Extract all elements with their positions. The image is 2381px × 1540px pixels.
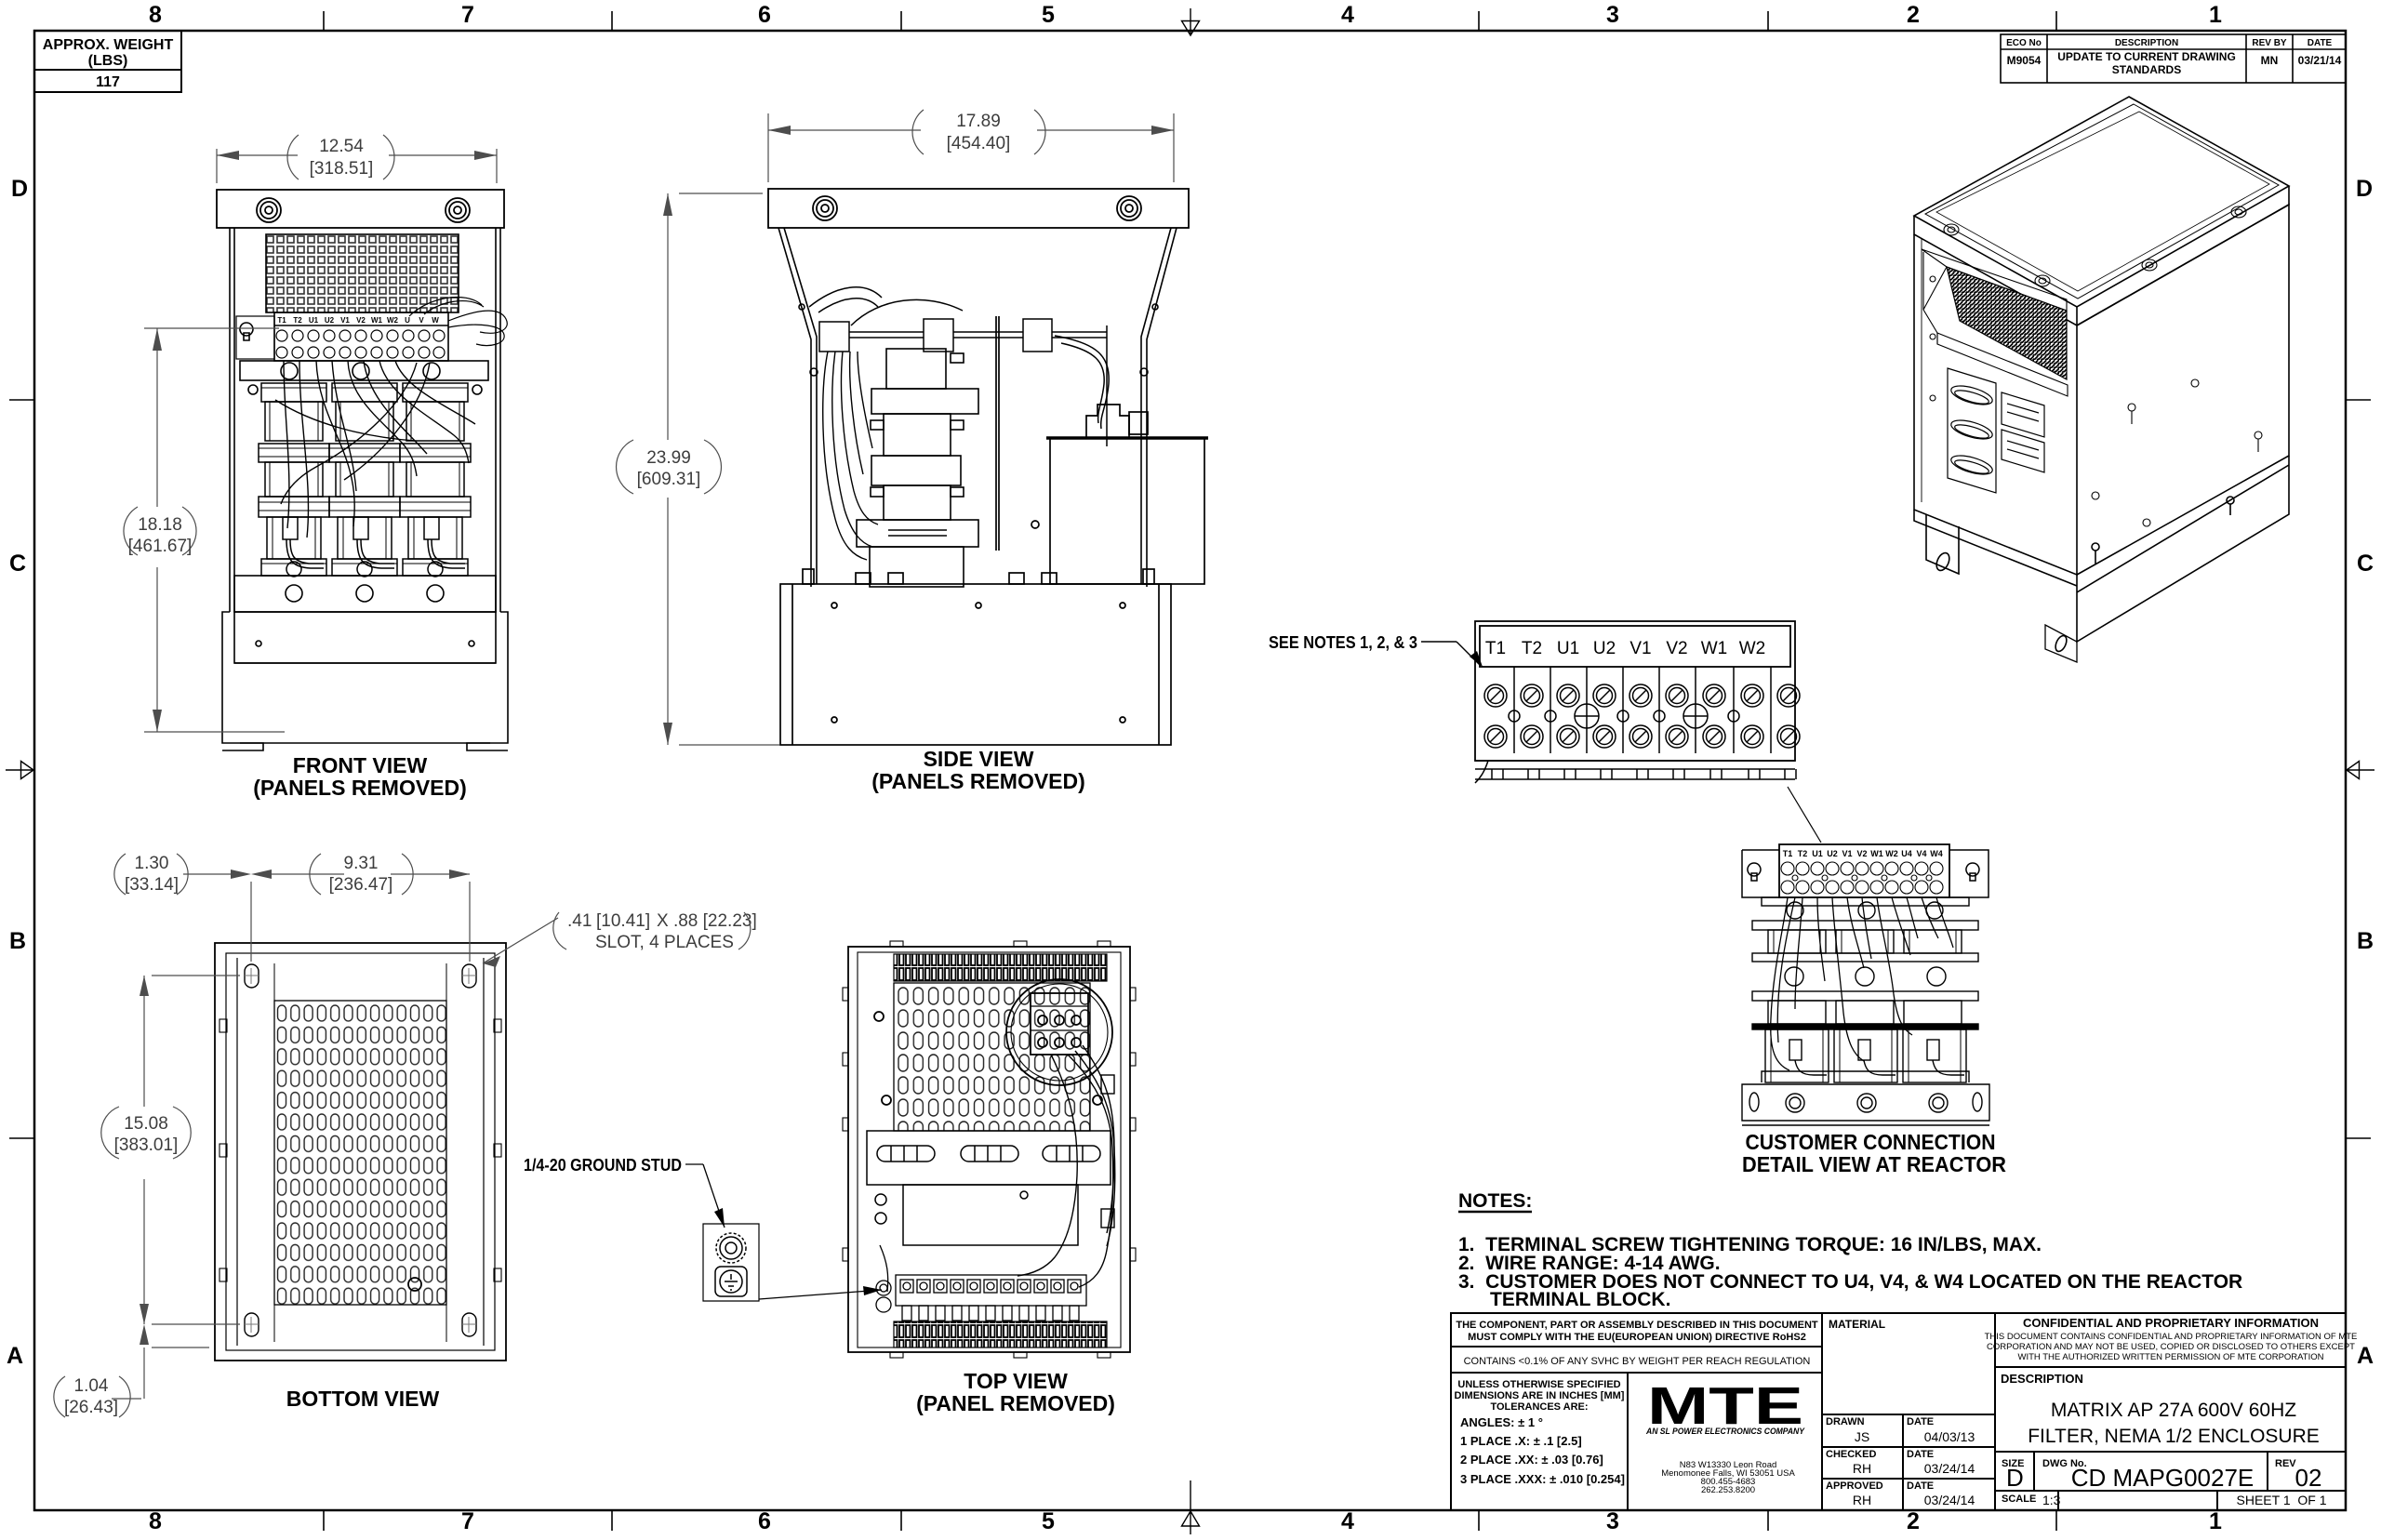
svg-text:D: D [11,176,28,202]
svg-text:1: 1 [2209,1508,2222,1534]
svg-text:SCALE: SCALE [2002,1494,2036,1505]
svg-text:AN SL POWER ELECTRONICS COMPAN: AN SL POWER ELECTRONICS COMPANY [1645,1427,1805,1436]
svg-text:04/03/13: 04/03/13 [1924,1429,1975,1444]
svg-text:W: W [432,316,439,325]
svg-text:DATE: DATE [1907,1480,1934,1492]
svg-text:[10.41]: [10.41] [596,911,650,931]
svg-text:1.30: 1.30 [135,854,169,873]
svg-text:SLOT, 4 PLACES: SLOT, 4 PLACES [595,933,734,952]
svg-text:U2: U2 [325,316,335,325]
svg-text:V1: V1 [1629,639,1651,658]
svg-text:2: 2 [1907,2,1920,28]
svg-text:REV BY: REV BY [2252,38,2287,48]
svg-text:1:3: 1:3 [2042,1493,2061,1507]
svg-text:STANDARDS: STANDARDS [2112,63,2181,76]
svg-text:5: 5 [1042,2,1055,28]
svg-text:B: B [2357,928,2374,954]
svg-text:ANGLES: ± 1 °: ANGLES: ± 1 ° [1460,1415,1543,1429]
svg-text:CD MAPG0027E: CD MAPG0027E [2071,1464,2255,1492]
svg-text:RH: RH [1853,1493,1871,1507]
svg-text:23.99: 23.99 [646,448,691,468]
svg-text:17.89: 17.89 [956,112,1001,131]
svg-text:CHECKED: CHECKED [1826,1449,1876,1460]
svg-text:T2: T2 [1522,639,1542,658]
svg-text:MN: MN [2261,54,2279,67]
svg-text:[461.67]: [461.67] [128,537,193,556]
svg-text:03/21/14: 03/21/14 [2298,54,2342,67]
svg-text:SHEET 1 OF 1: SHEET 1 OF 1 [2237,1493,2327,1507]
svg-text:U4: U4 [1901,849,1912,858]
svg-text:REV: REV [2275,1458,2296,1469]
svg-text:[33.14]: [33.14] [125,875,179,895]
svg-text:CUSTOMER CONNECTION: CUSTOMER CONNECTION [1746,1130,1996,1154]
svg-text:[609.31]: [609.31] [637,470,701,489]
svg-text:DESCRIPTION: DESCRIPTION [2115,38,2178,48]
svg-text:V2: V2 [1666,639,1687,658]
svg-text:1.04: 1.04 [74,1376,109,1396]
svg-text:CONTAINS <0.1% OF ANY SVHC BY: CONTAINS <0.1% OF ANY SVHC BY WEIGHT PER… [1464,1356,1811,1367]
svg-text:W4: W4 [1930,849,1943,858]
svg-text:3: 3 [1606,1508,1619,1534]
svg-text:D: D [2356,176,2373,202]
svg-text:MUST COMPLY WITH THE EU(EUROPE: MUST COMPLY WITH THE EU(EUROPEAN UNION) … [1468,1332,1806,1343]
svg-text:9.31: 9.31 [344,854,379,873]
svg-text:7: 7 [461,2,474,28]
svg-text:6: 6 [758,1508,771,1534]
svg-text:B: B [9,928,26,954]
svg-text:(PANEL REMOVED): (PANEL REMOVED) [916,1391,1115,1415]
svg-text:TERMINAL BLOCK.: TERMINAL BLOCK. [1490,1289,1670,1310]
svg-text:WITH THE AUTHORIZED WRITTEN PE: WITH THE AUTHORIZED WRITTEN PERMISSION O… [2018,1352,2324,1362]
svg-text:V1: V1 [1842,849,1852,858]
svg-text:BOTTOM VIEW: BOTTOM VIEW [286,1387,440,1411]
svg-text:A: A [2357,1343,2374,1369]
svg-text:DATE: DATE [1907,1416,1934,1427]
svg-text:V2: V2 [356,316,366,325]
svg-text:W2: W2 [1739,639,1766,658]
svg-text:T1: T1 [1485,639,1506,658]
svg-text:FILTER, NEMA 1/2 ENCLOSURE: FILTER, NEMA 1/2 ENCLOSURE [2028,1426,2320,1447]
svg-text:W2: W2 [1885,849,1898,858]
svg-text:W2: W2 [387,316,399,325]
svg-text:CONFIDENTIAL AND PROPRIETARY I: CONFIDENTIAL AND PROPRIETARY INFORMATION [2023,1316,2319,1330]
svg-text:6: 6 [758,2,771,28]
svg-text:U1: U1 [1812,849,1823,858]
svg-text:MATRIX AP 27A 600V 60HZ: MATRIX AP 27A 600V 60HZ [2051,1400,2296,1421]
svg-text:[454.40]: [454.40] [947,134,1011,153]
svg-text:7: 7 [461,1508,474,1534]
svg-text:8: 8 [149,2,162,28]
svg-text:DETAIL VIEW AT REACTOR: DETAIL VIEW AT REACTOR [1742,1152,2006,1176]
svg-text:DESCRIPTION: DESCRIPTION [2001,1372,2083,1386]
svg-text:T2: T2 [1798,849,1808,858]
svg-text:4: 4 [1341,2,1354,28]
svg-text:UPDATE TO CURRENT DRAWING: UPDATE TO CURRENT DRAWING [2057,50,2236,63]
svg-text:W1: W1 [1701,639,1728,658]
svg-text:262.253.8200: 262.253.8200 [1701,1485,1755,1495]
svg-text:CORPORATION AND MAY NOT BE USE: CORPORATION AND MAY NOT BE USED, COPIED … [1987,1342,2355,1352]
svg-text:D: D [2006,1464,2024,1492]
svg-text:APPROVED: APPROVED [1826,1480,1883,1492]
svg-text:THIS DOCUMENT CONTAINS CONFIDE: THIS DOCUMENT CONTAINS CONFIDENTIAL AND … [1985,1332,2358,1342]
svg-text:U: U [405,316,410,325]
svg-text:C: C [9,551,26,577]
svg-text:A: A [7,1343,23,1369]
svg-text:V1: V1 [340,316,350,325]
svg-text:1/4-20 GROUND STUD: 1/4-20 GROUND STUD [524,1156,682,1175]
svg-text:4: 4 [1341,1508,1354,1534]
svg-text:1 PLACE .X: ± .1 [2.5]: 1 PLACE .X: ± .1 [2.5] [1460,1434,1582,1448]
svg-text:.41: .41 [567,911,592,931]
svg-text:[26.43]: [26.43] [64,1398,118,1417]
svg-text:SIDE VIEW: SIDE VIEW [924,747,1034,771]
svg-text:(PANELS REMOVED): (PANELS REMOVED) [253,776,467,800]
svg-text:TOLERANCES ARE:: TOLERANCES ARE: [1490,1401,1588,1413]
svg-text:03/24/14: 03/24/14 [1924,1493,1975,1507]
svg-text:2 PLACE .XX: ± .03 [0.76]: 2 PLACE .XX: ± .03 [0.76] [1460,1453,1603,1467]
svg-text:U2: U2 [1593,639,1616,658]
svg-text:03/24/14: 03/24/14 [1924,1461,1975,1476]
svg-text:3 PLACE .XXX: ± .010 [0.254]: 3 PLACE .XXX: ± .010 [0.254] [1460,1472,1625,1486]
svg-text:02: 02 [2295,1464,2322,1492]
svg-text:[383.01]: [383.01] [114,1135,179,1155]
svg-text:APPROX. WEIGHT: APPROX. WEIGHT [43,37,174,53]
svg-text:V2: V2 [1856,849,1867,858]
svg-text:5: 5 [1042,1508,1055,1534]
svg-text:MATERIAL: MATERIAL [1829,1318,1885,1331]
svg-text:UNLESS OTHERWISE SPECIFIED: UNLESS OTHERWISE SPECIFIED [1457,1379,1620,1390]
svg-text:18.18: 18.18 [138,515,182,535]
svg-text:U1: U1 [309,316,319,325]
svg-text:FRONT VIEW: FRONT VIEW [293,753,428,777]
svg-text:DIMENSIONS ARE IN INCHES [MM]: DIMENSIONS ARE IN INCHES [MM] [1455,1390,1625,1401]
svg-text:X .88 [22.23]: X .88 [22.23] [657,911,757,931]
svg-text:1: 1 [2209,2,2222,28]
svg-text:M9054: M9054 [2007,54,2042,67]
svg-text:(LBS): (LBS) [88,53,128,69]
svg-text:V: V [419,316,424,325]
svg-text:12.54: 12.54 [319,137,364,156]
svg-text:ECO No: ECO No [2006,38,2042,48]
svg-text:(PANELS REMOVED): (PANELS REMOVED) [871,769,1085,793]
svg-text:RH: RH [1853,1461,1871,1476]
svg-text:T2: T2 [293,316,302,325]
svg-text:DATE: DATE [2308,38,2333,48]
svg-text:C: C [2357,551,2374,577]
svg-text:[318.51]: [318.51] [310,159,374,179]
svg-text:JS: JS [1855,1429,1869,1444]
svg-text:T1: T1 [277,316,286,325]
svg-text:117: 117 [96,74,120,90]
svg-text:THE COMPONENT, PART OR ASSEMBL: THE COMPONENT, PART OR ASSEMBLY DESCRIBE… [1456,1320,1818,1331]
svg-text:8: 8 [149,1508,162,1534]
svg-text:[236.47]: [236.47] [329,875,393,895]
svg-text:W1: W1 [1870,849,1883,858]
svg-text:NOTES:: NOTES: [1458,1190,1532,1212]
svg-text:W1: W1 [371,316,383,325]
svg-text:DRAWN: DRAWN [1826,1416,1865,1427]
svg-text:U2: U2 [1827,849,1838,858]
svg-text:TOP VIEW: TOP VIEW [964,1369,1068,1393]
svg-text:DATE: DATE [1907,1449,1934,1460]
svg-text:V4: V4 [1916,849,1926,858]
svg-text:SEE NOTES 1, 2, & 3: SEE NOTES 1, 2, & 3 [1269,633,1417,652]
svg-text:2: 2 [1907,1508,1920,1534]
svg-text:U1: U1 [1557,639,1579,658]
svg-text:T1: T1 [1783,849,1793,858]
svg-text:3: 3 [1606,2,1619,28]
svg-text:15.08: 15.08 [124,1114,168,1134]
